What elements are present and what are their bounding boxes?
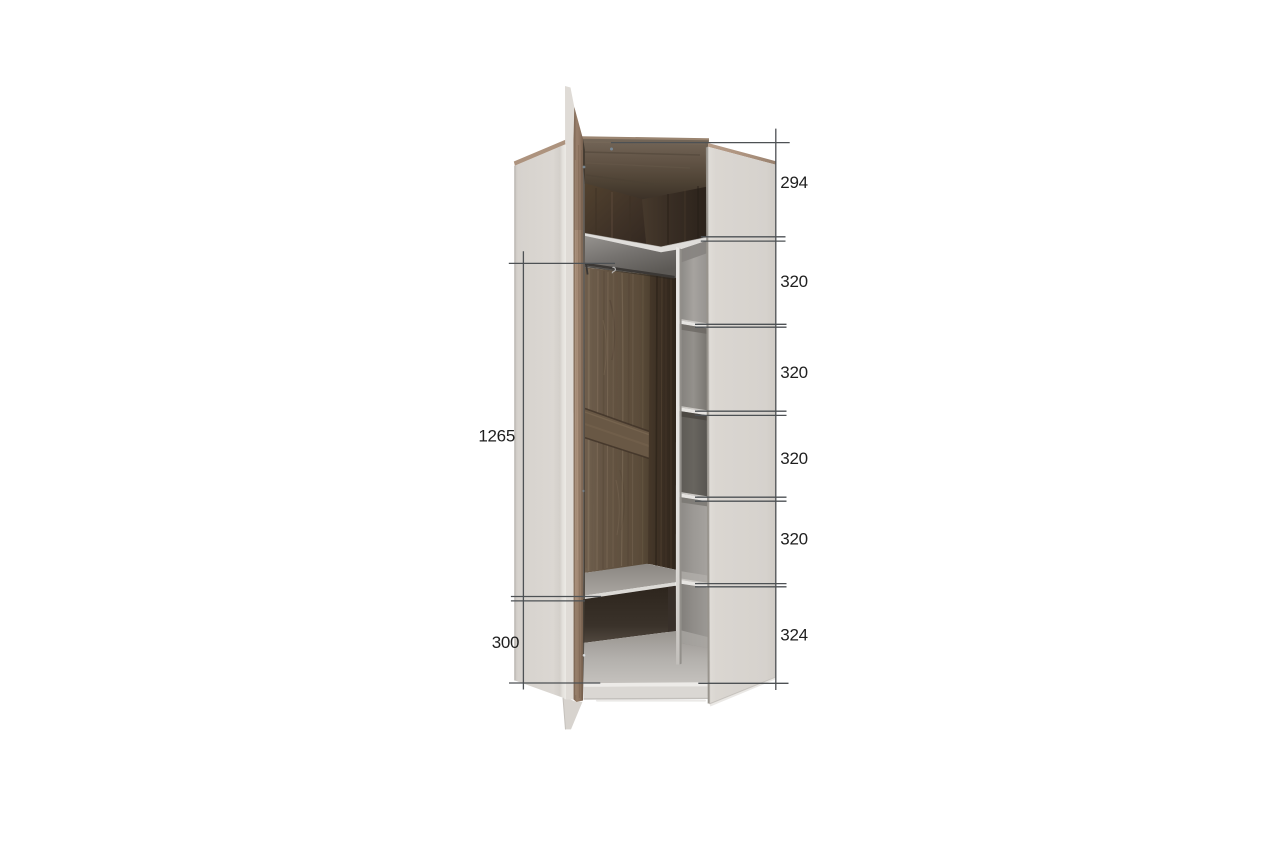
svg-text:324: 324 <box>780 625 807 644</box>
svg-text:300: 300 <box>492 633 519 652</box>
svg-text:320: 320 <box>780 272 807 291</box>
svg-text:320: 320 <box>780 530 807 549</box>
svg-text:320: 320 <box>780 363 807 382</box>
svg-text:320: 320 <box>780 449 807 468</box>
svg-text:294: 294 <box>780 173 807 192</box>
svg-text:1265: 1265 <box>478 427 515 446</box>
